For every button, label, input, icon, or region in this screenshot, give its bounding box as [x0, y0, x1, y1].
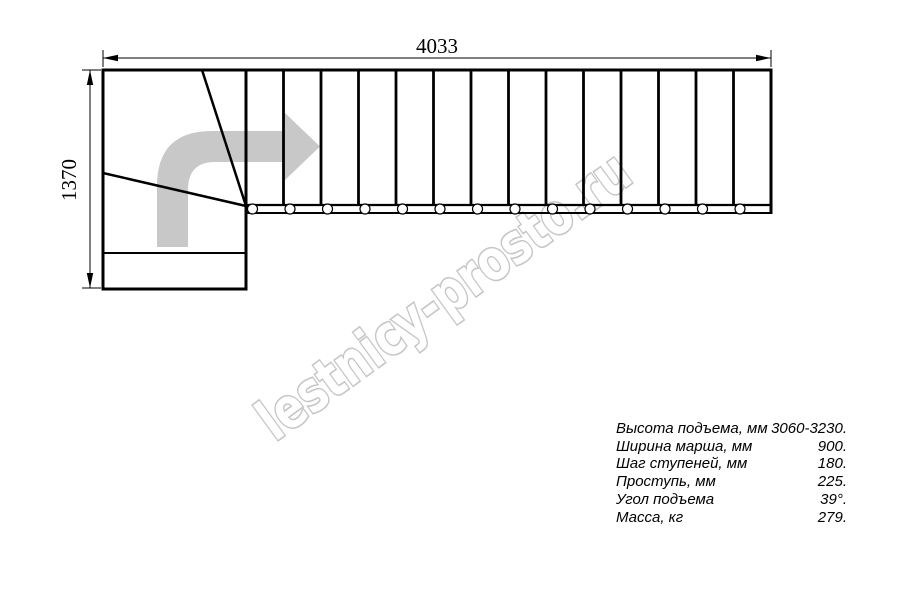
spec-value: 3060-3230. — [771, 420, 847, 438]
spec-label: Проступь, мм — [616, 473, 716, 491]
tread-lines — [284, 70, 734, 205]
spec-value: 39°. — [820, 491, 847, 509]
bolt-circle — [435, 204, 445, 214]
spec-label: Масса, кг — [616, 509, 683, 527]
spec-value: 279. — [818, 509, 847, 527]
spec-label: Ширина марша, мм — [616, 438, 752, 456]
spec-value: 225. — [818, 473, 847, 491]
bolt-circle — [285, 204, 295, 214]
spec-table: Высота подъема, мм 3060-3230. Ширина мар… — [616, 420, 847, 526]
spec-label: Шаг ступеней, мм — [616, 455, 747, 473]
bolt-circle — [360, 204, 370, 214]
bolt-circle — [510, 204, 520, 214]
bolt-circle — [548, 204, 558, 214]
bolt-circle — [735, 204, 745, 214]
spec-row: Проступь, мм 225. — [616, 473, 847, 491]
straight-flight — [246, 69, 771, 215]
spec-row: Высота подъема, мм 3060-3230. — [616, 420, 847, 438]
bolt-circle — [585, 204, 595, 214]
bolt-circle — [660, 204, 670, 214]
spec-row: Масса, кг 279. — [616, 509, 847, 527]
spec-row: Шаг ступеней, мм 180. — [616, 455, 847, 473]
dim-arrow-left — [103, 55, 118, 61]
winder-section — [102, 69, 772, 290]
plan-linework — [102, 69, 772, 290]
bolt-circle — [623, 204, 633, 214]
dim-width-label: 4033 — [416, 34, 458, 58]
spec-label: Высота подъема, мм — [616, 420, 768, 438]
spec-label: Угол подъема — [616, 491, 714, 509]
dim-arrow-bottom — [87, 273, 93, 288]
bolt-circle — [398, 204, 408, 214]
spec-value: 180. — [818, 455, 847, 473]
dim-arrow-top — [87, 70, 93, 85]
spec-row: Ширина марша, мм 900. — [616, 438, 847, 456]
bolt-circle — [248, 204, 258, 214]
dimension-width: 4033 — [103, 34, 771, 67]
spec-row: Угол подъема 39°. — [616, 491, 847, 509]
spec-value: 900. — [818, 438, 847, 456]
bolt-circle — [323, 204, 333, 214]
bolt-circle — [698, 204, 708, 214]
bolt-circle — [473, 204, 483, 214]
dimension-height: 1370 — [57, 70, 101, 288]
dim-height-label: 1370 — [57, 159, 81, 201]
dim-arrow-right — [756, 55, 771, 61]
